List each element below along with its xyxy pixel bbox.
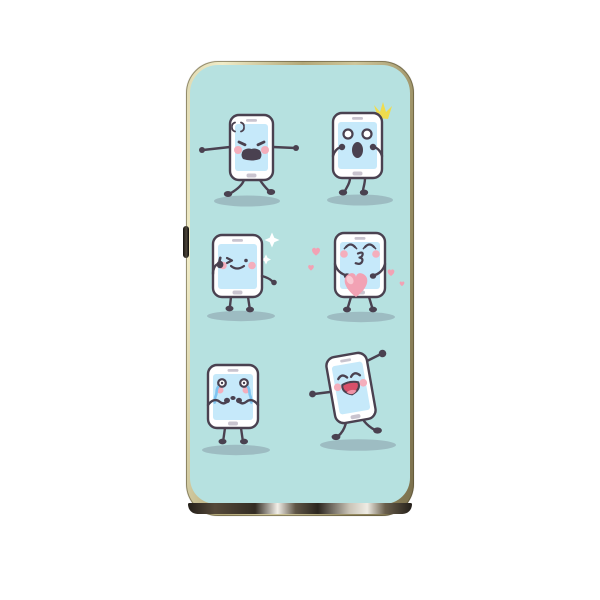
heart-icon: [308, 265, 314, 271]
case-back-panel: [190, 65, 410, 504]
shadow: [327, 195, 393, 206]
heart-icon: [400, 281, 405, 286]
crying-phone-character: [200, 358, 296, 458]
winking-phone-character: [200, 228, 296, 326]
shadow: [202, 445, 270, 455]
case-bottom-band: [188, 503, 412, 514]
dancing-phone-character: [300, 336, 410, 456]
phone-case: [186, 61, 414, 516]
product-photo: { "scene": { "description": "phone case …: [0, 0, 600, 600]
shadow: [214, 196, 280, 207]
heart-icon: [312, 248, 320, 256]
corner-highlight: [402, 63, 407, 67]
surprised-phone-character: [312, 100, 410, 206]
sparkle-icon: [265, 233, 280, 248]
shadow: [327, 312, 395, 322]
angry-phone-character: [198, 108, 300, 210]
side-button: [183, 226, 189, 258]
shadow: [207, 311, 275, 321]
kissing-phone-character: [306, 226, 410, 326]
heart-icon: [388, 269, 395, 276]
shadow: [320, 439, 396, 451]
